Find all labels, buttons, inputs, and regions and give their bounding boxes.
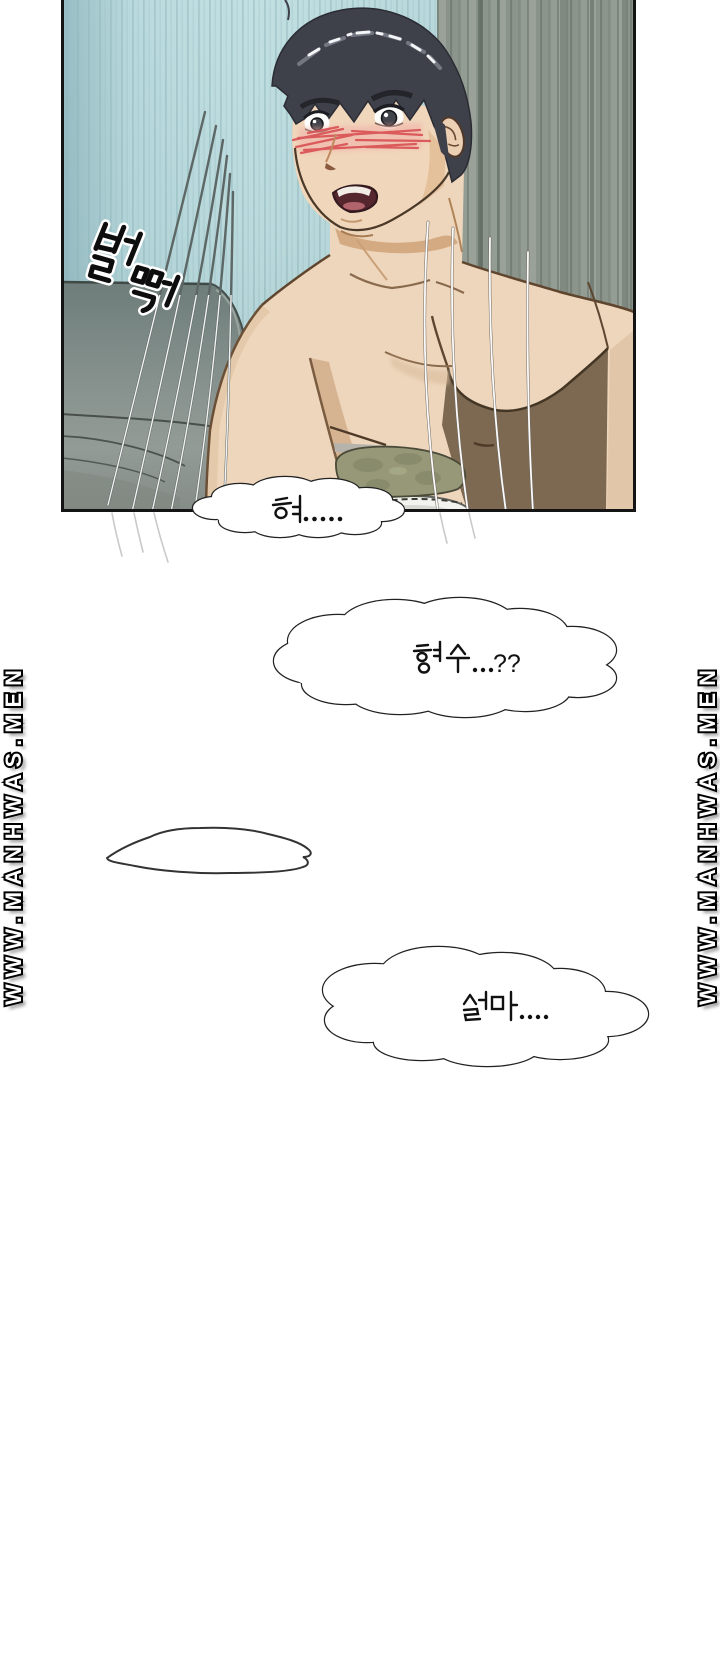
svg-text:WWW.MANHWAS.MEN: WWW.MANHWAS.MEN (1, 665, 26, 1005)
svg-text:WWW.MANHWAS.MEN: WWW.MANHWAS.MEN (695, 665, 720, 1005)
svg-text:??: ?? (493, 650, 521, 678)
